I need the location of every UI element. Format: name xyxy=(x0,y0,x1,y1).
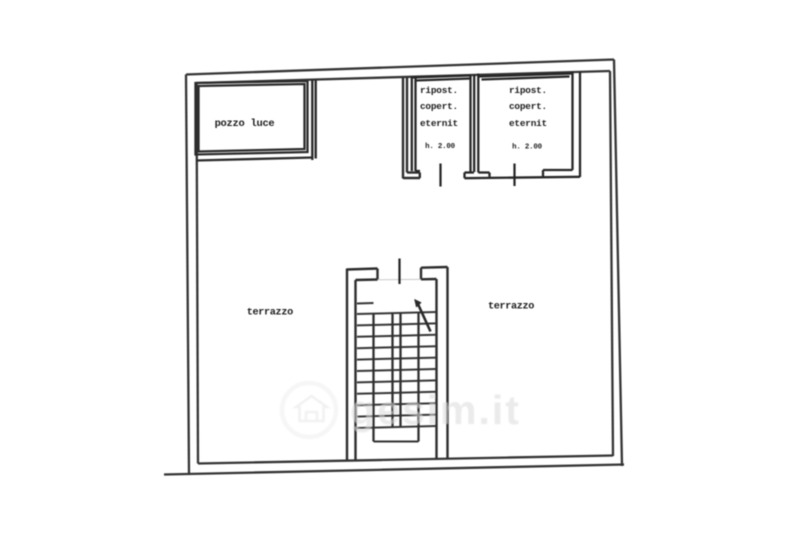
svg-text:pozzo luce: pozzo luce xyxy=(215,118,275,130)
svg-text:ripost.: ripost. xyxy=(420,85,458,96)
svg-text:copert.: copert. xyxy=(420,101,458,112)
svg-text:h. 2.00: h. 2.00 xyxy=(512,144,542,152)
svg-text:eternit: eternit xyxy=(509,118,547,129)
svg-text:terrazzo: terrazzo xyxy=(247,308,293,319)
svg-text:terrazzo: terrazzo xyxy=(488,302,534,313)
svg-text:gesim.it: gesim.it xyxy=(350,387,521,433)
svg-text:eternit: eternit xyxy=(420,118,458,129)
svg-text:ripost.: ripost. xyxy=(509,85,547,96)
svg-text:h. 2.00: h. 2.00 xyxy=(425,143,455,151)
svg-text:copert.: copert. xyxy=(509,101,547,112)
